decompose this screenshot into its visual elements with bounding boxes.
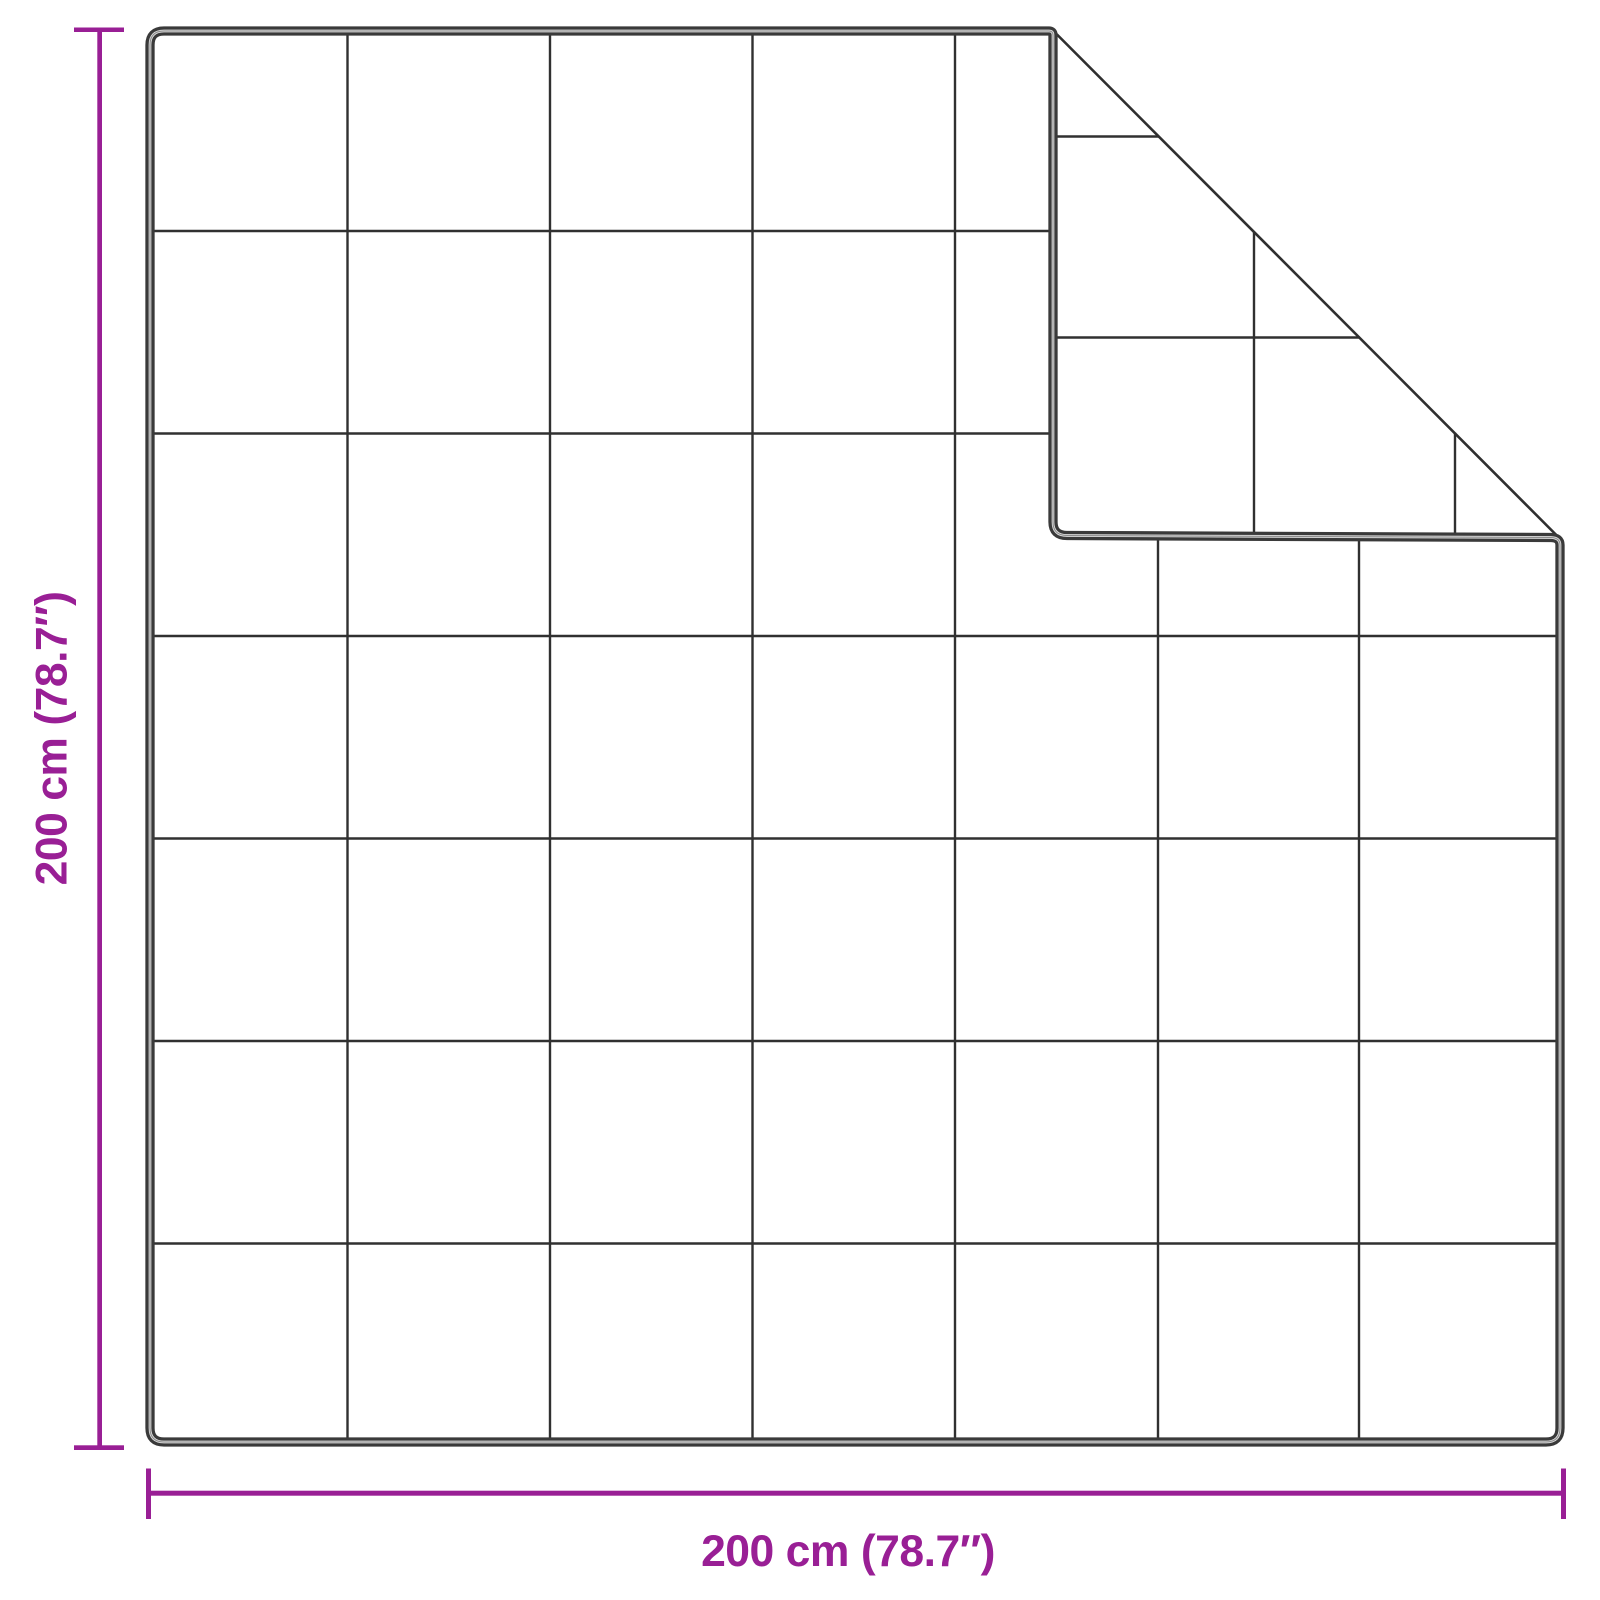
- svg-text:200 cm (78.7″): 200 cm (78.7″): [701, 1527, 995, 1576]
- svg-text:200 cm (78.7″): 200 cm (78.7″): [28, 592, 77, 886]
